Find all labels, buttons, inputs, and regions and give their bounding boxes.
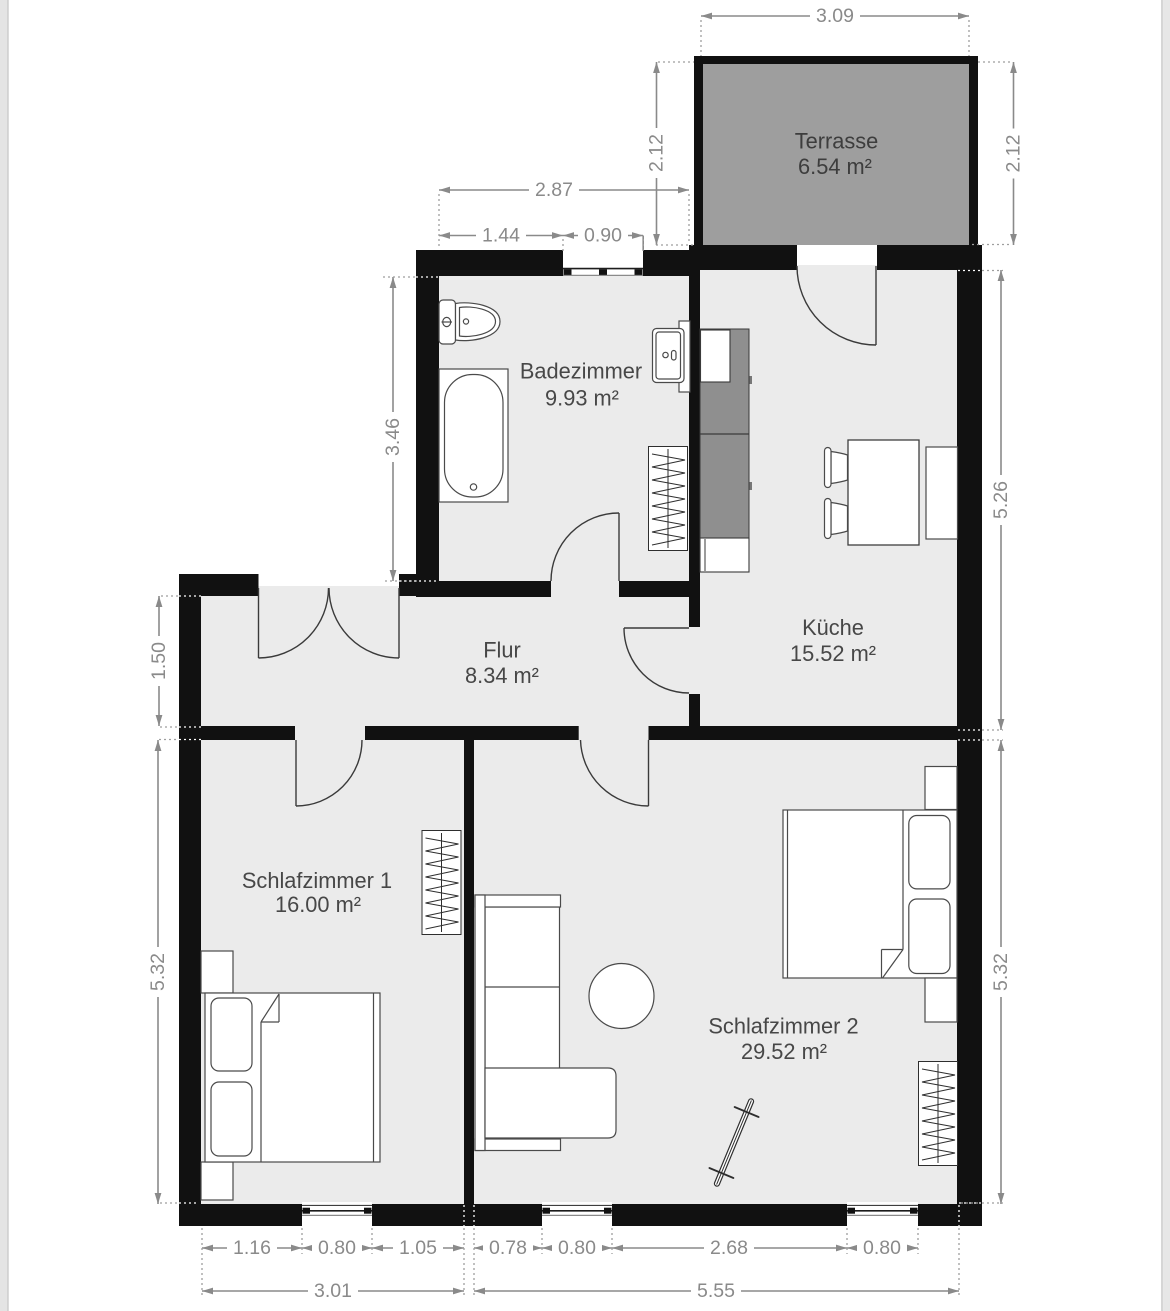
- svg-text:3.46: 3.46: [382, 418, 404, 456]
- svg-text:0.80: 0.80: [558, 1237, 596, 1259]
- svg-text:0.80: 0.80: [863, 1237, 901, 1259]
- svg-text:Küche: Küche: [802, 615, 864, 640]
- svg-text:1.50: 1.50: [148, 642, 170, 680]
- svg-text:5.32: 5.32: [990, 953, 1012, 991]
- svg-text:0.90: 0.90: [584, 225, 622, 247]
- svg-text:5.26: 5.26: [990, 481, 1012, 519]
- svg-text:Schlafzimmer 2: Schlafzimmer 2: [708, 1014, 858, 1039]
- svg-text:Flur: Flur: [483, 638, 521, 663]
- svg-text:6.54 m²: 6.54 m²: [798, 154, 872, 179]
- svg-text:0.80: 0.80: [318, 1237, 356, 1259]
- svg-text:Terrasse: Terrasse: [795, 129, 879, 154]
- svg-text:2.87: 2.87: [535, 179, 573, 201]
- svg-text:5.32: 5.32: [147, 953, 169, 991]
- svg-text:15.52 m²: 15.52 m²: [790, 641, 876, 666]
- svg-text:Schlafzimmer 1: Schlafzimmer 1: [242, 868, 392, 893]
- svg-text:16.00 m²: 16.00 m²: [275, 892, 361, 917]
- svg-text:1.05: 1.05: [399, 1237, 437, 1259]
- svg-text:2.12: 2.12: [646, 134, 668, 172]
- svg-text:5.55: 5.55: [697, 1280, 735, 1302]
- svg-text:3.09: 3.09: [816, 5, 854, 27]
- svg-text:8.34 m²: 8.34 m²: [465, 663, 539, 688]
- svg-text:9.93 m²: 9.93 m²: [545, 386, 619, 411]
- svg-text:1.44: 1.44: [482, 225, 520, 247]
- svg-text:0.78: 0.78: [489, 1237, 527, 1259]
- svg-text:3.01: 3.01: [314, 1280, 352, 1302]
- svg-text:2.12: 2.12: [1003, 135, 1025, 173]
- svg-text:29.52 m²: 29.52 m²: [741, 1039, 827, 1064]
- svg-text:2.68: 2.68: [710, 1237, 748, 1259]
- svg-text:1.16: 1.16: [233, 1237, 271, 1259]
- svg-text:Badezimmer: Badezimmer: [520, 359, 642, 384]
